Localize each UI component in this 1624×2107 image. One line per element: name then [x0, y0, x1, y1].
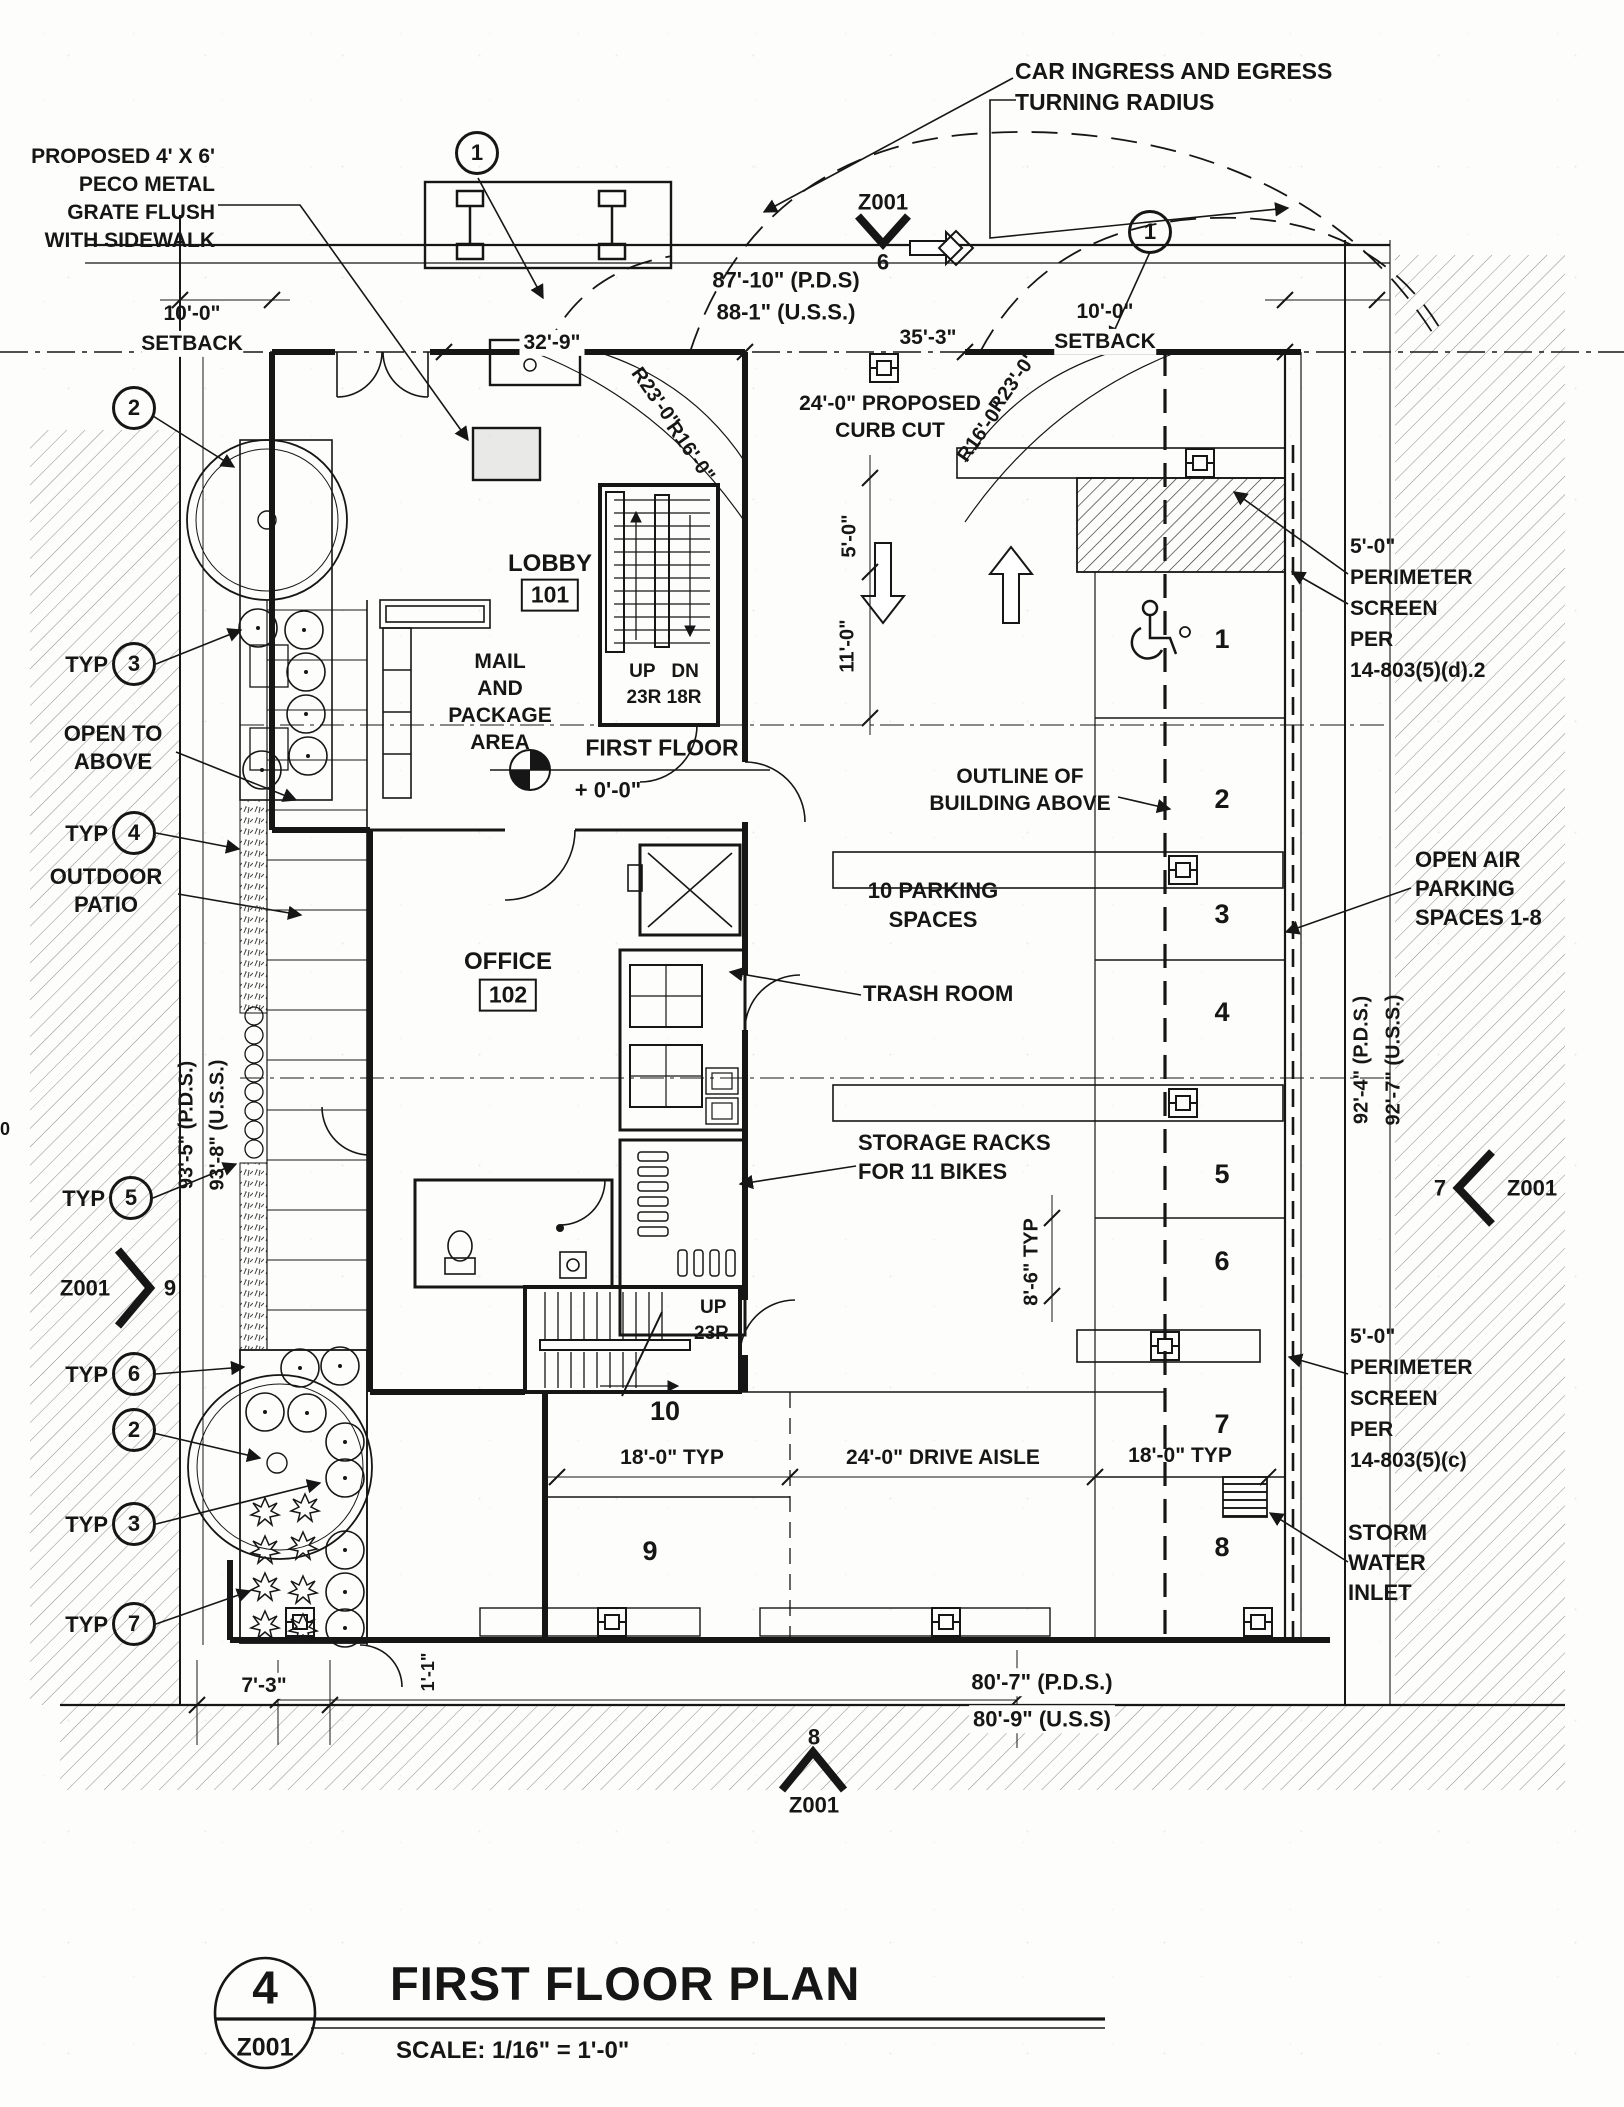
typ-label-3-lower: TYP [42, 1511, 108, 1539]
dim-80-7: 80'-7" (P.D.S.) [967, 1668, 1116, 1696]
storm-water-note: STORM WATER INLET [1348, 1518, 1427, 1608]
setback-left-value: 10'-0" [164, 301, 221, 327]
dim-92-4: 92'-4" (P.D.S.) [1350, 996, 1375, 1124]
title-detail-number: 4 [252, 1959, 278, 2017]
elevator [628, 845, 740, 935]
bike-racks [638, 1152, 735, 1276]
parking-space-6: 6 [1214, 1245, 1229, 1279]
marker-z001-8-sheet: Z001 [789, 1791, 839, 1819]
parking-space-7: 7 [1214, 1408, 1229, 1442]
marker-z001-6-num: 6 [877, 248, 889, 276]
typ-label-5: TYP [39, 1185, 105, 1213]
bathroom-fixtures [445, 1224, 586, 1278]
dim-93-5: 93'-5" (P.D.S.) [175, 1061, 200, 1189]
outline-above-note: OUTLINE OF BUILDING ABOVE [900, 763, 1140, 817]
typ-label-7: TYP [42, 1611, 108, 1639]
callout-typ4: 4 [112, 811, 156, 855]
sidewalk-rack-box [425, 182, 671, 268]
dim-92-7: 92'-7" (U.S.S.) [1382, 995, 1407, 1126]
perimeter-screen-c-note: 5'-0" PERIMETER SCREEN PER 14-803(5)(c) [1350, 1321, 1473, 1476]
parking-space-4: 4 [1214, 996, 1229, 1030]
turning-radius-arcs [545, 132, 1442, 352]
parking-space-9: 9 [642, 1535, 657, 1569]
dim-93-8: 93'-8" (U.S.S.) [206, 1060, 231, 1191]
dim-7-3: 7'-3" [238, 1673, 289, 1699]
car-ingress-note: CAR INGRESS AND EGRESS TURNING RADIUS [1015, 56, 1332, 118]
first-floor-elevation: + 0'-0" [575, 776, 641, 804]
callout-typ3-lower: 3 [112, 1502, 156, 1546]
marker-z001-7-num: 7 [1434, 1174, 1446, 1202]
wheelchair-icon [1132, 601, 1190, 658]
parking-space-8: 8 [1214, 1531, 1229, 1565]
typ-label-3-upper: TYP [42, 651, 108, 679]
parking-space-5: 5 [1214, 1158, 1229, 1192]
trash-bins [630, 965, 738, 1124]
stair-bottom [540, 1292, 690, 1396]
parking-space-1: 1 [1214, 623, 1229, 657]
room-lobby-name: LOBBY [508, 549, 592, 579]
parking-space-10: 10 [650, 1395, 680, 1429]
stair2-up: UP [700, 1296, 726, 1320]
dim-35-3: 35'-3" [896, 325, 961, 351]
drawing-title: FIRST FLOOR PLAN [390, 1955, 860, 2014]
dim-8-6: 8'-6" TYP [1020, 1218, 1045, 1306]
marker-z001-8-num: 8 [808, 1723, 820, 1751]
callout-2-lower: 2 [112, 1408, 156, 1452]
dim-11-0: 11'-0" [836, 619, 861, 672]
perimeter-screen-d2-note: 5'-0" PERIMETER SCREEN PER 14-803(5)(d).… [1350, 531, 1485, 686]
dim-80-9: 80'-9" (U.S.S) [969, 1705, 1115, 1733]
bushes-top [239, 609, 327, 789]
marker-z001-9-sheet: Z001 [60, 1274, 110, 1302]
room-mail-area: MAIL AND PACKAGE AREA [405, 648, 595, 756]
marker-z001-6-sheet: Z001 [858, 188, 908, 216]
trash-room-note: TRASH ROOM [863, 980, 1013, 1008]
parking-space-2: 2 [1214, 783, 1229, 817]
stair1-updn: UP DN [629, 660, 699, 684]
parking-space-3: 3 [1214, 898, 1229, 932]
typ-label-4: TYP [42, 820, 108, 848]
drawing-scale: SCALE: 1/16" = 1'-0" [396, 2036, 629, 2066]
outdoor-patio-note: OUTDOOR PATIO [16, 863, 196, 919]
stair-top [606, 492, 710, 652]
callout-typ6: 6 [112, 1352, 156, 1396]
setback-right-value: 10'-0" [1077, 299, 1134, 325]
setback-right-word: SETBACK [1054, 329, 1156, 355]
marker-z001-7-sheet: Z001 [1507, 1174, 1557, 1202]
dim-1-1: 1'-1" [417, 1653, 440, 1692]
open-air-note: OPEN AIR PARKING SPACES 1-8 [1415, 845, 1542, 932]
open-to-above-note: OPEN TO ABOVE [28, 720, 198, 776]
edge-artifact: 0 [0, 1118, 10, 1141]
room-office-number: 102 [479, 979, 537, 1012]
entry-vestibule [473, 340, 580, 480]
floor-plan-sheet: PROPOSED 4' X 6' PECO METAL GRATE FLUSH … [0, 0, 1624, 2107]
dim-32-9: 32'-9" [520, 330, 585, 356]
stair1-risers: 23R 18R [627, 686, 702, 710]
dim-87-10: 87'-10" (P.D.S) [712, 266, 859, 294]
peco-grate-note: PROPOSED 4' X 6' PECO METAL GRATE FLUSH … [30, 143, 215, 255]
setback-left-word: SETBACK [141, 331, 243, 357]
room-office-name: OFFICE [464, 947, 552, 977]
dim-18-typ-left: 18'-0" TYP [620, 1445, 724, 1471]
marker-z001-9-num: 9 [164, 1274, 176, 1302]
dim-18-typ-right: 18'-0" TYP [1128, 1443, 1232, 1469]
callout-2-upper: 2 [112, 386, 156, 430]
landscape [187, 440, 372, 1645]
stair2-risers: 23R [694, 1322, 729, 1346]
title-sheet-ref: Z001 [237, 2032, 294, 2063]
callout-1-top-right: 1 [1128, 210, 1172, 254]
ten-parking-note: 10 PARKING SPACES [828, 876, 1038, 934]
callout-typ3-upper: 3 [112, 642, 156, 686]
room-lobby-number: 101 [521, 579, 579, 612]
callout-typ7: 7 [112, 1602, 156, 1646]
dim-24-drive-aisle: 24'-0" DRIVE AISLE [846, 1445, 1040, 1471]
typ-label-6: TYP [42, 1361, 108, 1389]
first-floor-label: FIRST FLOOR [585, 734, 738, 763]
storage-racks-note: STORAGE RACKS FOR 11 BIKES [858, 1128, 1051, 1186]
dim-5-0: 5'-0" [838, 514, 863, 557]
callout-1-top-left: 1 [455, 131, 499, 175]
callout-typ5: 5 [109, 1176, 153, 1220]
dim-88-1: 88-1" (U.S.S.) [717, 298, 856, 326]
